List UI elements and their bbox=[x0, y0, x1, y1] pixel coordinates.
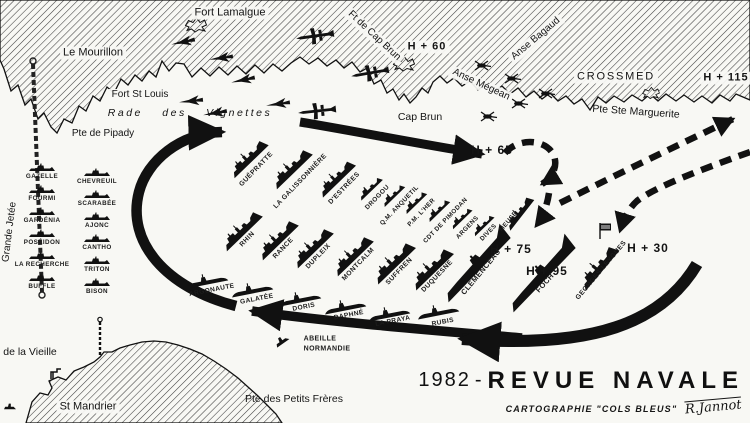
ship-clemenceau-icon bbox=[436, 224, 513, 303]
fort-lamalgue-icon bbox=[186, 18, 207, 32]
jet-4-icon bbox=[179, 95, 204, 107]
ship-guepratte-icon bbox=[225, 136, 268, 179]
ship-montcalm-icon bbox=[328, 232, 374, 277]
moored-gazelle-icon bbox=[29, 164, 55, 172]
fleet-track-layer bbox=[137, 119, 750, 341]
flag-marker-icon bbox=[600, 223, 611, 239]
ship-rhin-icon bbox=[217, 207, 263, 252]
moored-chevreuil-icon bbox=[84, 169, 110, 177]
moored-ajonc-icon bbox=[84, 213, 110, 221]
dashed-holding-loop bbox=[505, 142, 555, 184]
map-year: 1982 bbox=[418, 369, 471, 391]
antenna-mast-icon bbox=[98, 317, 102, 355]
patrol-plane-3-icon bbox=[297, 101, 336, 121]
ship-cdt-de-pimodan-icon bbox=[424, 197, 450, 222]
track-outbound-arrow bbox=[300, 122, 482, 154]
moored-poseidon-icon bbox=[29, 230, 55, 238]
fort-ste-marguerite-icon bbox=[643, 87, 660, 98]
map-title: REVUE NAVALE bbox=[488, 367, 744, 394]
ship-dupleix-icon bbox=[288, 224, 334, 269]
ship-georges-leygues-icon bbox=[574, 241, 619, 291]
sub-doris-icon bbox=[278, 288, 321, 307]
track-southeast-curve-arrow bbox=[462, 264, 697, 341]
moored-fourmi-icon bbox=[29, 186, 55, 194]
helicopter-2-icon bbox=[481, 112, 497, 121]
ship-argens-icon bbox=[448, 205, 472, 229]
sub-daphne-icon bbox=[323, 296, 366, 315]
sub-galatee-icon bbox=[230, 279, 273, 298]
title-block: 1982-REVUE NAVALE bbox=[418, 367, 744, 395]
land-layer bbox=[0, 0, 750, 423]
dashed-exit-east bbox=[560, 119, 733, 203]
ship-qm-anquetil-icon bbox=[379, 182, 405, 207]
credit-row: CARTOGRAPHIE "COLS BLEUS" R.Jannot bbox=[506, 400, 742, 415]
ship-la-galissonniere-icon bbox=[267, 145, 313, 190]
ship-drogou-icon bbox=[356, 174, 383, 201]
sub-argonaute-icon bbox=[185, 270, 228, 289]
naval-review-map: Fort LamalgueLe MourillonFort St LouisRa… bbox=[0, 0, 750, 423]
moored-gardenia-icon bbox=[29, 208, 55, 216]
ship-pm-lher-icon bbox=[401, 189, 427, 214]
ship-meuse-icon bbox=[502, 193, 535, 230]
ship-dives-icon bbox=[470, 212, 494, 236]
jetee-end-marker bbox=[39, 292, 45, 298]
moored-scarabee-icon bbox=[84, 191, 110, 199]
ship-foch-icon bbox=[501, 234, 578, 313]
cartographer-signature: R.Jannot bbox=[685, 398, 743, 418]
sub-rubis-icon bbox=[416, 301, 459, 320]
helicopter-5-icon bbox=[512, 99, 528, 108]
ship-d-estrees-icon bbox=[314, 156, 356, 197]
fort-cap-brun-icon bbox=[394, 57, 415, 71]
tug-abeille-icon bbox=[273, 333, 289, 347]
moored-bison-icon bbox=[84, 279, 110, 287]
coastline-north-shore bbox=[0, 0, 750, 133]
small-boat-icon bbox=[4, 404, 16, 410]
jet-3-icon bbox=[230, 73, 256, 88]
title-separator: - bbox=[475, 369, 482, 391]
jet-6-icon bbox=[265, 97, 290, 110]
moored-cantho-icon bbox=[84, 235, 110, 243]
jet-5-icon bbox=[202, 106, 227, 120]
moored-triton-icon bbox=[84, 257, 110, 265]
dashed-meuse-approach bbox=[536, 193, 549, 226]
ship-suffren-icon bbox=[368, 237, 416, 284]
sub-la-praya-icon bbox=[367, 303, 410, 322]
coastline-st-mandrier bbox=[26, 341, 282, 423]
map-canvas bbox=[0, 0, 750, 423]
ship-rance-icon bbox=[253, 216, 299, 261]
cartography-credit: CARTOGRAPHIE "COLS BLEUS" bbox=[506, 404, 678, 414]
